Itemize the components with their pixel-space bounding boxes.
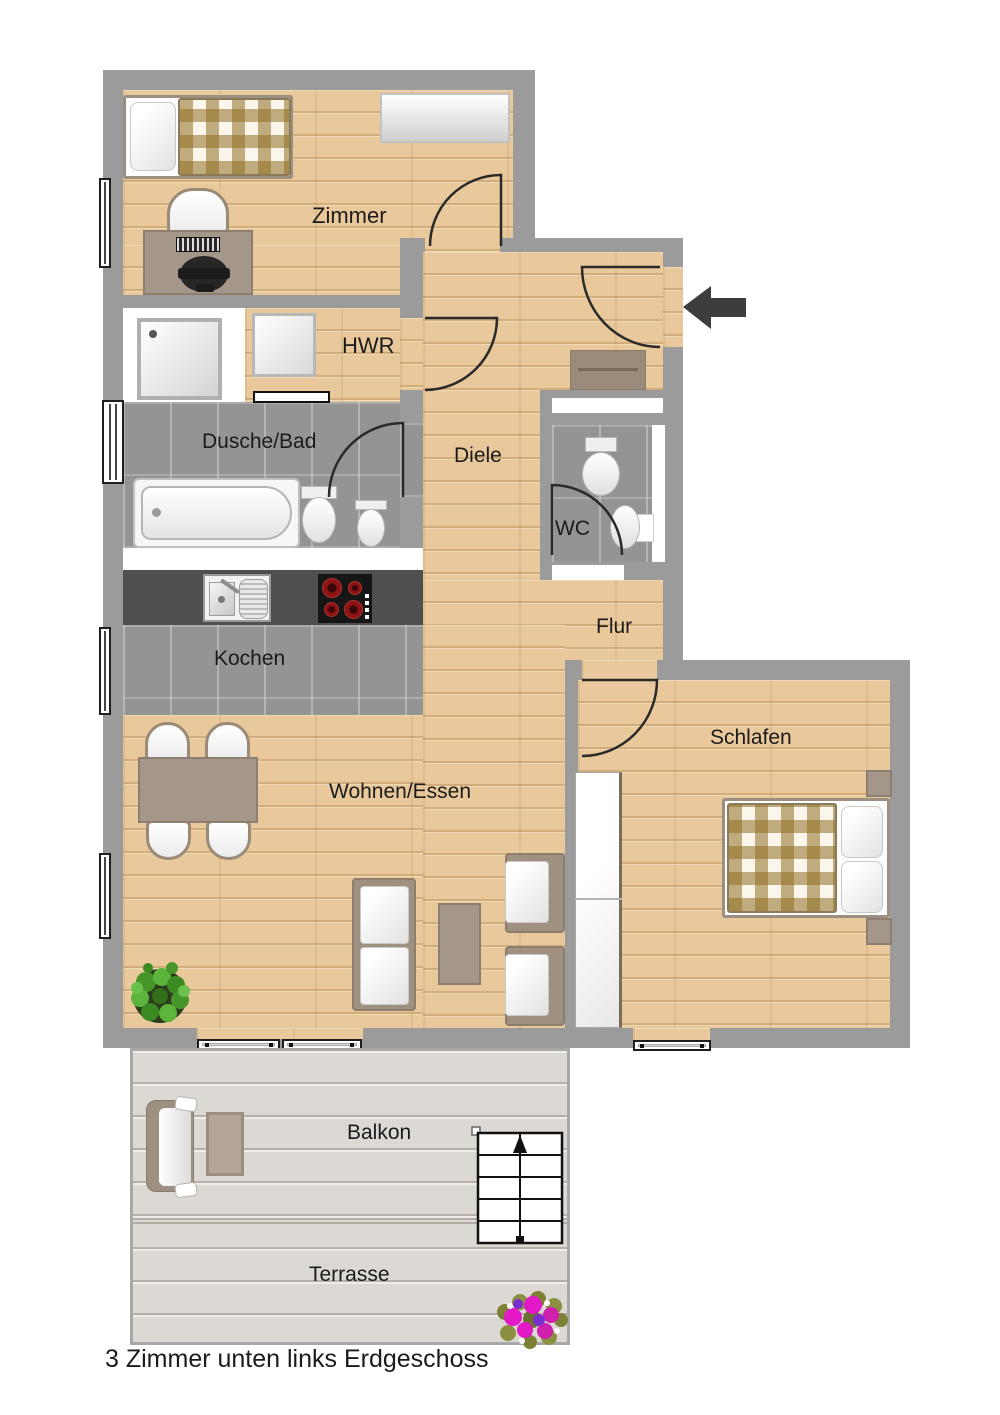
- room-label-wc: WC: [555, 517, 590, 540]
- window-kochen: [99, 627, 111, 715]
- balcony-table: [206, 1112, 244, 1176]
- wall-top: [103, 70, 535, 90]
- window-pane-line: [104, 857, 106, 935]
- sink-drainboard: [239, 579, 268, 619]
- door-glass: [202, 1043, 275, 1046]
- sofa-cushion: [360, 886, 409, 944]
- wc-toilet-bowl: [582, 452, 620, 496]
- door-glass: [287, 1043, 357, 1046]
- single-bed-pillow: [130, 102, 176, 171]
- window-glass: [638, 1044, 706, 1047]
- bathtub-basin: [141, 486, 292, 540]
- room-label-wohnen-essen: Wohnen/Essen: [329, 780, 471, 803]
- wall-stub-v1: [400, 252, 423, 318]
- wall-stub-v3: [400, 497, 423, 548]
- office-chair-base: [196, 284, 214, 292]
- wc-toilet-tank: [585, 437, 617, 452]
- nightstand: [866, 918, 892, 945]
- hwr-shelf: [253, 391, 330, 403]
- wall-schlafen-top: [657, 660, 910, 680]
- plan-caption: 3 Zimmer unten links Erdgeschoss: [105, 1346, 488, 1374]
- wall-entrance-top: [500, 238, 683, 252]
- entrance-sideboard-line: [578, 368, 638, 371]
- window-pane-line: [109, 404, 111, 480]
- wall-right-c: [663, 580, 683, 660]
- dining-table: [138, 757, 258, 823]
- lounge-wing-top: [174, 1096, 198, 1113]
- window-wohnen: [99, 853, 111, 939]
- window-pane-line: [104, 182, 106, 264]
- window-zimmer: [99, 178, 111, 268]
- floor-schlafen-doorway: [582, 660, 657, 680]
- balcony-door-recess: [197, 1028, 363, 1039]
- wc-doorway: [552, 565, 624, 580]
- double-bed-blanket: [727, 803, 837, 913]
- room-label-diele: Diele: [454, 444, 502, 467]
- bathtub-drain: [152, 508, 161, 517]
- floor-plan: Zimmer HWR Dusche/Bad Diele WC Flur Koch…: [0, 0, 1000, 1415]
- shower-drain: [149, 330, 157, 338]
- window-schlafen-bottom: [633, 1040, 711, 1051]
- wall-zimmer-door-stub: [400, 238, 425, 252]
- room-label-balkon: Balkon: [347, 1121, 411, 1144]
- room-label-terrasse: Terrasse: [309, 1263, 390, 1286]
- window-pane-line: [115, 404, 117, 480]
- keyboard: [176, 237, 220, 252]
- room-label-hwr: HWR: [342, 334, 395, 358]
- bad-bottom-niche: [123, 548, 423, 570]
- zimmer-wardrobe: [380, 93, 510, 143]
- single-bed-blanket: [178, 98, 291, 176]
- bed-pillow: [841, 806, 883, 858]
- wall-schlafen-right: [890, 660, 910, 1048]
- desk-chair: [167, 188, 229, 236]
- schlafen-wardrobe-divider: [575, 898, 622, 900]
- schlafen-wardrobe: [575, 772, 622, 1028]
- stove: [318, 574, 372, 623]
- room-label-schlafen: Schlafen: [710, 726, 792, 749]
- floor-bad-doorway: [400, 423, 423, 497]
- entrance-arrow-icon: [683, 286, 746, 329]
- schlafen-window-recess: [633, 1028, 710, 1040]
- balcony-terrace-divider: [133, 1218, 567, 1224]
- nightstand: [866, 770, 892, 797]
- armchair-cushion: [505, 861, 549, 923]
- dining-chair: [145, 722, 190, 762]
- armchair-cushion: [505, 954, 549, 1016]
- wall-right-a: [663, 252, 683, 267]
- toilet-bowl-bad: [302, 497, 336, 543]
- wc-niche: [552, 398, 663, 413]
- washing-machine: [252, 313, 316, 377]
- bidet-bowl: [357, 509, 385, 547]
- balcony-terrace-area: [130, 1048, 570, 1345]
- wall-stub-v2: [400, 390, 423, 423]
- window-bad: [102, 400, 124, 484]
- room-label-dusche-bad: Dusche/Bad: [202, 430, 316, 453]
- floor-diele-lower: [423, 390, 540, 580]
- coffee-table: [438, 903, 481, 985]
- sink-drain: [218, 596, 225, 603]
- wc-sink: [610, 505, 640, 549]
- wall-zimmer-bottom: [103, 295, 400, 308]
- burner-large-1: [322, 578, 342, 598]
- wall-schlafen-top-stub: [565, 660, 582, 680]
- lounge-cushion: [159, 1108, 191, 1186]
- floor-hwr-doorway: [400, 318, 423, 390]
- kitchen-sink: [203, 574, 271, 622]
- lounge-chair: [146, 1100, 194, 1192]
- burner-large-2: [344, 600, 363, 619]
- burner-small-1: [348, 581, 362, 595]
- room-label-kochen: Kochen: [214, 647, 285, 670]
- office-chair-arm: [178, 268, 230, 279]
- stove-knobs: [365, 594, 369, 620]
- dining-chair: [205, 722, 250, 762]
- sofa-cushion: [360, 947, 409, 1005]
- room-label-flur: Flur: [596, 615, 632, 638]
- floor-entrance: [663, 267, 683, 347]
- bed-pillow: [841, 861, 883, 913]
- room-label-zimmer: Zimmer: [312, 204, 387, 228]
- window-pane-line: [104, 631, 106, 711]
- kitchen-counter: [123, 570, 423, 625]
- wall-right-b: [663, 347, 683, 390]
- wall-zimmer-right: [513, 70, 535, 238]
- burner-small-2: [324, 602, 339, 617]
